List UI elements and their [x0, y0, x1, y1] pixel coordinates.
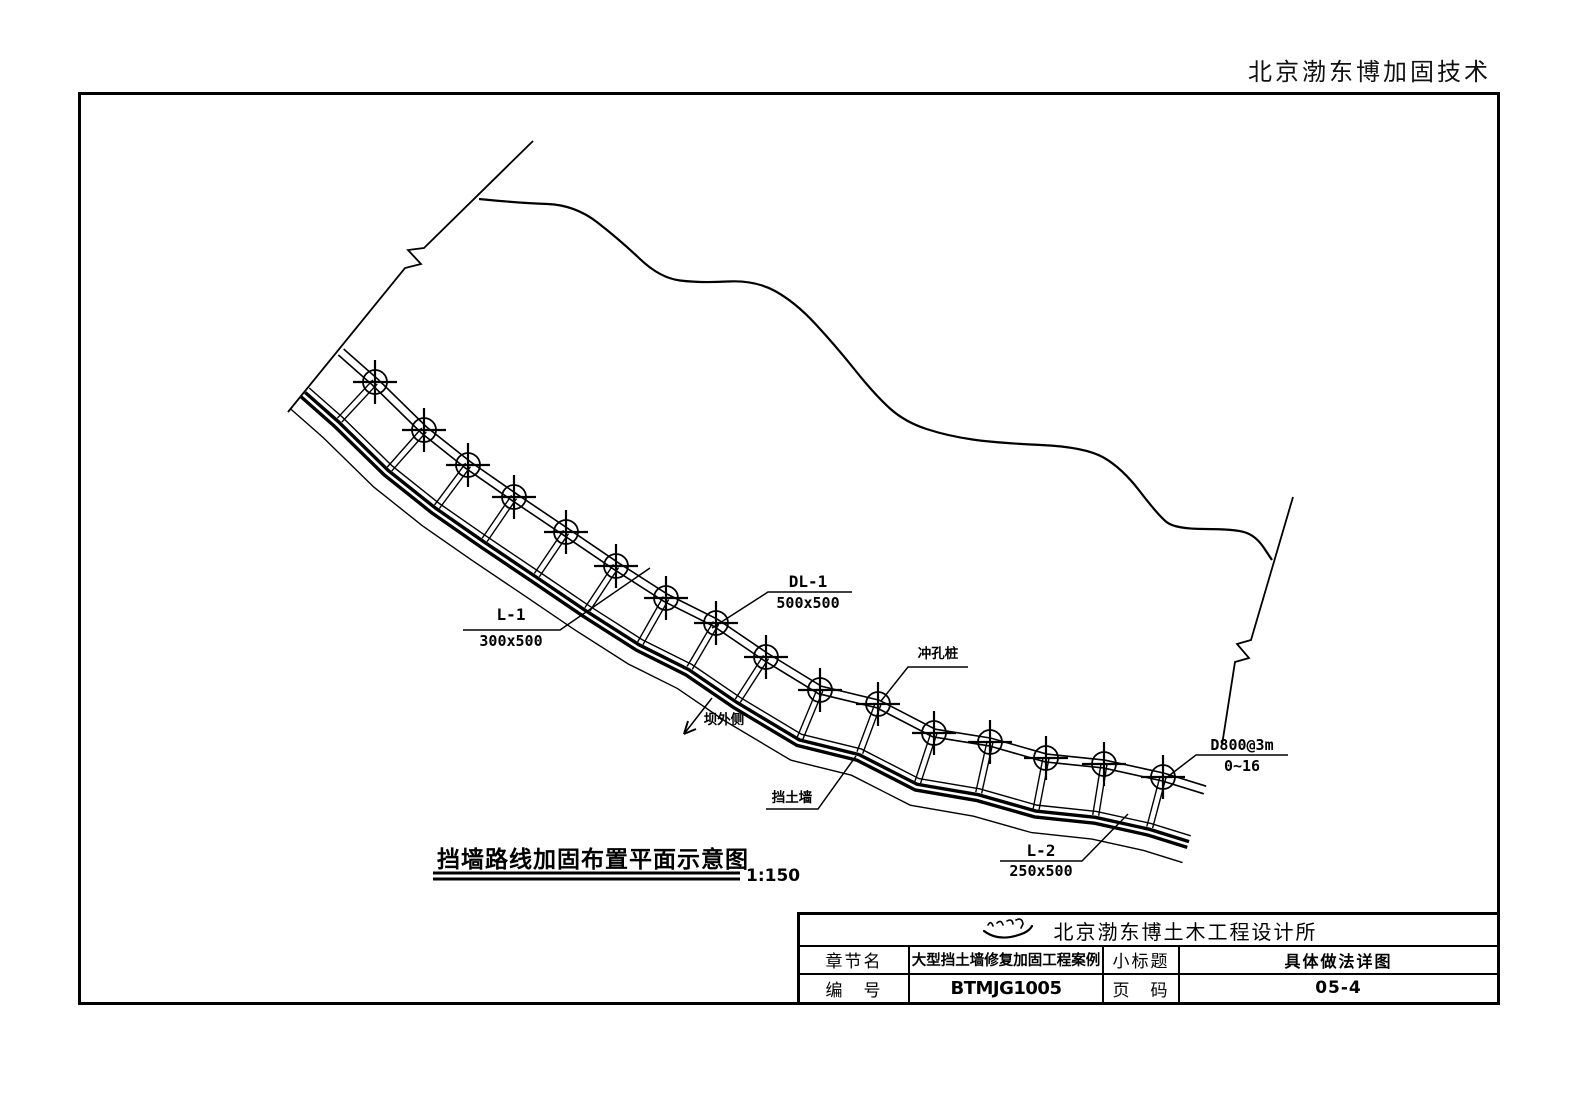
label-retaining-wall: 挡土墙	[763, 791, 821, 806]
wall-inner-edge	[309, 388, 1191, 836]
company-name: 北京渤东博土木工程设计所	[1054, 916, 1318, 945]
tie-beam-line	[1033, 757, 1043, 808]
chapter-label: 章节名	[800, 947, 910, 975]
page: 北京渤东博加固技术 L-1 300x500 DL-1 500x500 冲孔桩 坝…	[0, 0, 1571, 1098]
tie-beam-line	[982, 743, 993, 794]
tie-beam-line	[487, 499, 516, 542]
tie-beam-line	[539, 534, 568, 577]
tie-beam-line	[392, 432, 426, 471]
page-label: 页 码	[1104, 975, 1180, 1003]
label-crown-beam-size: 500x500	[762, 595, 854, 612]
drawing-scale: 1:150	[746, 866, 800, 886]
drawing-title: 挡墙路线加固布置平面示意图	[437, 840, 749, 874]
title-block: 北京渤东博土木工程设计所 章节名 大型挡土墙修复加固工程案例 小标题 具体做法详…	[797, 912, 1497, 1002]
label-tie-beam-l1-size: 300x500	[461, 633, 561, 650]
tie-beam-line	[976, 741, 987, 792]
break-line-left	[288, 141, 533, 412]
retaining-wall-band	[301, 397, 1187, 847]
retaining-wall-band	[305, 392, 1189, 841]
page-value: 05-4	[1180, 975, 1497, 1003]
terrain-contour-line	[479, 199, 1272, 560]
crown-beam-edge	[344, 349, 1207, 786]
tie-beam-line	[435, 463, 466, 505]
leader-punched_pile	[881, 667, 968, 701]
subtitle-value: 具体做法详图	[1180, 947, 1497, 975]
wall-outer-edge	[291, 409, 1183, 863]
tie-beam-line	[439, 467, 470, 509]
chapter-value: 大型挡土墙修复加固工程案例	[910, 947, 1104, 975]
label-crown-beam-name: DL-1	[762, 573, 854, 591]
number-label: 编 号	[800, 975, 910, 1003]
label-dam-outer-side: 坝外侧	[699, 713, 749, 728]
tie-beam-line	[735, 655, 763, 699]
tie-beam-line	[740, 659, 768, 703]
tie-beam-line	[687, 621, 713, 666]
number-value: BTMJG1005	[910, 975, 1104, 1003]
company-logo-icon	[980, 917, 1042, 943]
label-tie-beam-l2-name: L-2	[998, 842, 1084, 860]
tie-beam-line	[337, 380, 372, 418]
tie-beam-line	[342, 384, 377, 422]
subtitle-label: 小标题	[1104, 947, 1180, 975]
label-tie-beam-l2-size: 250x500	[998, 863, 1084, 880]
tie-beam-line	[643, 599, 669, 644]
label-tie-beam-l1-name: L-1	[461, 606, 561, 624]
tie-beam-line	[387, 428, 421, 467]
title-block-company-row: 北京渤东博土木工程设计所	[800, 915, 1497, 947]
title-block-grid: 章节名 大型挡土墙修复加固工程案例 小标题 具体做法详图 编 号 BTMJG10…	[800, 947, 1497, 1002]
tie-beam-line	[692, 625, 718, 670]
tie-beam-line	[585, 564, 614, 607]
label-punched-pile: 冲孔桩	[905, 647, 971, 662]
label-pile-range: 0~16	[1195, 758, 1289, 775]
break-line-right	[1222, 497, 1293, 745]
tie-beam-line	[638, 597, 664, 642]
tie-beam-line	[590, 568, 619, 611]
tie-beam-line	[534, 530, 563, 573]
tie-beam-line	[1039, 759, 1049, 810]
label-pile-spec: D800@3m	[1195, 737, 1289, 754]
tie-beam-line	[482, 495, 511, 538]
